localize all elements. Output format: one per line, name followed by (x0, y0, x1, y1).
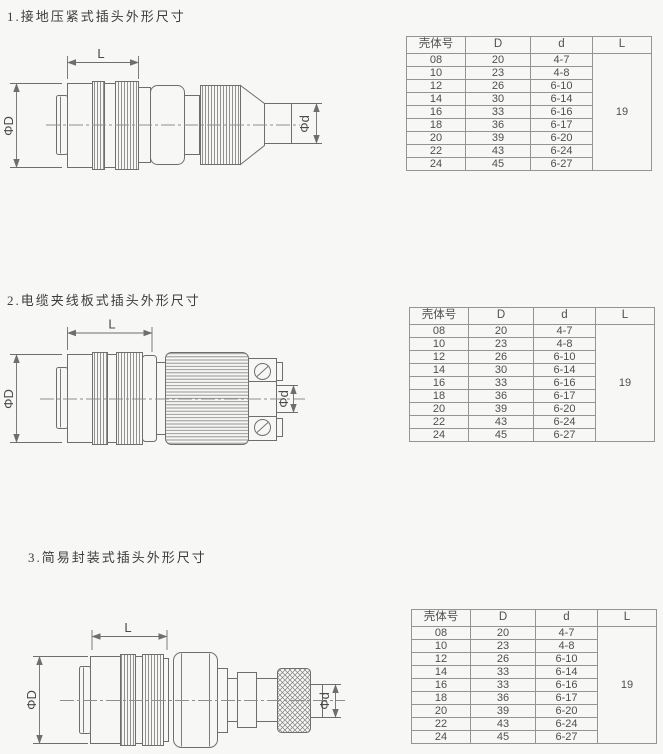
clamp-tab (277, 363, 283, 381)
table-cell: 12 (412, 653, 471, 666)
table-cell: 33 (471, 679, 536, 692)
plug-outline-3 (80, 653, 323, 748)
table-cell: 6-20 (534, 403, 596, 416)
dimension-phiD-3: ΦD (24, 657, 88, 744)
drawing-cable-clamp-plate-plug: L ΦD Φd (1, 317, 305, 445)
table-row: 08204-719 (407, 54, 652, 67)
table-cell: 6-24 (536, 718, 598, 731)
table-cell: 6-17 (531, 119, 593, 132)
table-row: 08204-719 (412, 627, 657, 640)
plug-outline-1 (57, 82, 292, 170)
drawing-simple-potted-plug: L ΦD Φd (24, 620, 345, 748)
table-cell: 08 (407, 54, 466, 67)
section-2-title: 2.电缆夹线板式插头外形尺寸 (7, 290, 201, 309)
end-cap (143, 356, 157, 442)
table-cell: 10 (407, 67, 466, 80)
table-cell: 24 (407, 158, 466, 171)
section-1-title: 1.接地压紧式插头外形尺寸 (7, 6, 186, 25)
table-cell: 24 (412, 731, 471, 744)
table-cell: 20 (407, 132, 466, 145)
table-cell: 20 (469, 325, 534, 338)
shaft-collar (238, 673, 257, 728)
table-cell: 26 (466, 80, 531, 93)
label-cable-diameter: Φd (317, 692, 332, 710)
table-cell: 14 (407, 93, 466, 106)
table-cell: 6-16 (531, 106, 593, 119)
body-section (68, 84, 93, 168)
table-cell: 6-24 (534, 416, 596, 429)
table-cell: 4-7 (536, 627, 598, 640)
table-cell: 36 (466, 119, 531, 132)
table-cell: 45 (471, 731, 536, 744)
table-cell: 6-27 (531, 158, 593, 171)
shared-length-cell: 19 (593, 54, 652, 171)
label-length: L (97, 46, 104, 61)
table-cell: 4-8 (531, 67, 593, 80)
column-header: d (531, 37, 593, 54)
label-outer-diameter: ΦD (1, 116, 16, 136)
table-cell: 4-7 (534, 325, 596, 338)
table-cell: 39 (469, 403, 534, 416)
table-cell: 6-14 (531, 93, 593, 106)
end-cap (164, 659, 169, 742)
clamp-tab (277, 419, 283, 437)
column-header: 壳体号 (407, 37, 466, 54)
knurl-band (143, 655, 164, 746)
column-header: d (536, 610, 598, 627)
table-cell: 43 (471, 718, 536, 731)
table-cell: 33 (469, 377, 534, 390)
table-cell: 18 (412, 692, 471, 705)
plug-outline-2 (57, 353, 283, 445)
coupling-barrel (174, 653, 218, 748)
table-cell: 6-17 (536, 692, 598, 705)
label-outer-diameter: ΦD (1, 389, 16, 409)
table-cell: 10 (410, 338, 469, 351)
table-cell: 36 (469, 390, 534, 403)
table-cell: 08 (412, 627, 471, 640)
column-header: D (469, 308, 534, 325)
table-cell: 23 (469, 338, 534, 351)
table-cell: 33 (471, 666, 536, 679)
table-cell: 23 (471, 640, 536, 653)
dimension-table-1: 壳体号DdL08204-71910234-812266-1014306-1416… (406, 36, 652, 171)
table-cell: 6-27 (536, 731, 598, 744)
table-cell: 43 (466, 145, 531, 158)
label-cable-diameter: Φd (297, 115, 312, 133)
body-section (136, 657, 143, 744)
table-cell: 43 (469, 416, 534, 429)
table-cell: 6-24 (531, 145, 593, 158)
table-cell: 6-27 (534, 429, 596, 442)
column-header: L (593, 37, 652, 54)
table-cell: 20 (471, 627, 536, 640)
ridged-barrel (166, 353, 249, 445)
label-outer-diameter: ΦD (24, 690, 39, 710)
body-section (108, 355, 117, 443)
dimension-phid-1: Φd (292, 104, 322, 144)
document-page: L ΦD Φd (0, 0, 663, 754)
table-cell: 16 (412, 679, 471, 692)
column-header: 壳体号 (412, 610, 471, 627)
table-cell: 26 (471, 653, 536, 666)
front-flange (57, 368, 68, 429)
knurl-band (93, 353, 108, 445)
table-cell: 6-16 (536, 679, 598, 692)
label-length: L (124, 620, 131, 635)
knurl-band (117, 353, 143, 445)
column-header: L (598, 610, 657, 627)
table-cell: 22 (412, 718, 471, 731)
table-cell: 33 (466, 106, 531, 119)
label-length: L (108, 317, 115, 332)
table-cell: 18 (407, 119, 466, 132)
knurl-band (116, 82, 139, 170)
section-3-title: 3.简易封装式插头外形尺寸 (28, 547, 207, 566)
table-cell: 6-14 (534, 364, 596, 377)
body-section (105, 84, 116, 168)
table-cell: 20 (410, 403, 469, 416)
column-header: 壳体号 (410, 308, 469, 325)
table-cell: 4-8 (534, 338, 596, 351)
table-cell: 6-14 (536, 666, 598, 679)
table-cell: 18 (410, 390, 469, 403)
cable-exit-cylinder (265, 104, 292, 144)
knurl-band (93, 82, 105, 170)
table-cell: 45 (469, 429, 534, 442)
table-cell: 45 (466, 158, 531, 171)
table-cell: 16 (410, 377, 469, 390)
knurl-band (121, 655, 136, 746)
column-header: D (471, 610, 536, 627)
dimension-L-3: L (92, 620, 167, 650)
table-cell: 20 (412, 705, 471, 718)
dimension-L-2: L (68, 317, 153, 353)
table-cell: 39 (471, 705, 536, 718)
table-cell: 14 (412, 666, 471, 679)
body-section (68, 355, 93, 443)
table-cell: 4-8 (536, 640, 598, 653)
column-header: L (596, 308, 655, 325)
step-ring (157, 363, 166, 435)
table-cell: 6-16 (534, 377, 596, 390)
body-section (91, 657, 121, 744)
table-cell: 6-10 (534, 351, 596, 364)
table-cell: 6-20 (531, 132, 593, 145)
table-cell: 14 (410, 364, 469, 377)
table-cell: 24 (410, 429, 469, 442)
column-header: D (466, 37, 531, 54)
table-cell: 36 (471, 692, 536, 705)
front-flange (80, 667, 91, 734)
dimension-phiD-1: ΦD (1, 84, 62, 168)
table-row: 08204-719 (410, 325, 655, 338)
table-cell: 6-20 (536, 705, 598, 718)
table-cell: 6-17 (534, 390, 596, 403)
table-cell: 16 (407, 106, 466, 119)
table-cell: 08 (410, 325, 469, 338)
dimension-table-2: 壳体号DdL08204-71910234-812266-1014306-1416… (409, 307, 655, 442)
drawing-grounding-compression-plug: L ΦD Φd (1, 46, 322, 170)
table-cell: 26 (469, 351, 534, 364)
table-cell: 12 (410, 351, 469, 364)
dimension-table-3: 壳体号DdL08204-71910234-812266-1014336-1416… (411, 609, 657, 744)
table-cell: 22 (407, 145, 466, 158)
column-header: d (534, 308, 596, 325)
table-cell: 20 (466, 54, 531, 67)
dimension-L-1: L (68, 46, 139, 79)
table-cell: 10 (412, 640, 471, 653)
table-cell: 6-10 (531, 80, 593, 93)
label-cable-diameter: Φd (276, 390, 291, 408)
table-cell: 30 (466, 93, 531, 106)
table-cell: 4-7 (531, 54, 593, 67)
dimension-phiD-2: ΦD (1, 355, 62, 443)
table-cell: 22 (410, 416, 469, 429)
table-cell: 23 (466, 67, 531, 80)
table-cell: 39 (466, 132, 531, 145)
shared-length-cell: 19 (598, 627, 657, 744)
shared-length-cell: 19 (596, 325, 655, 442)
table-cell: 12 (407, 80, 466, 93)
table-cell: 30 (469, 364, 534, 377)
table-cell: 6-10 (536, 653, 598, 666)
